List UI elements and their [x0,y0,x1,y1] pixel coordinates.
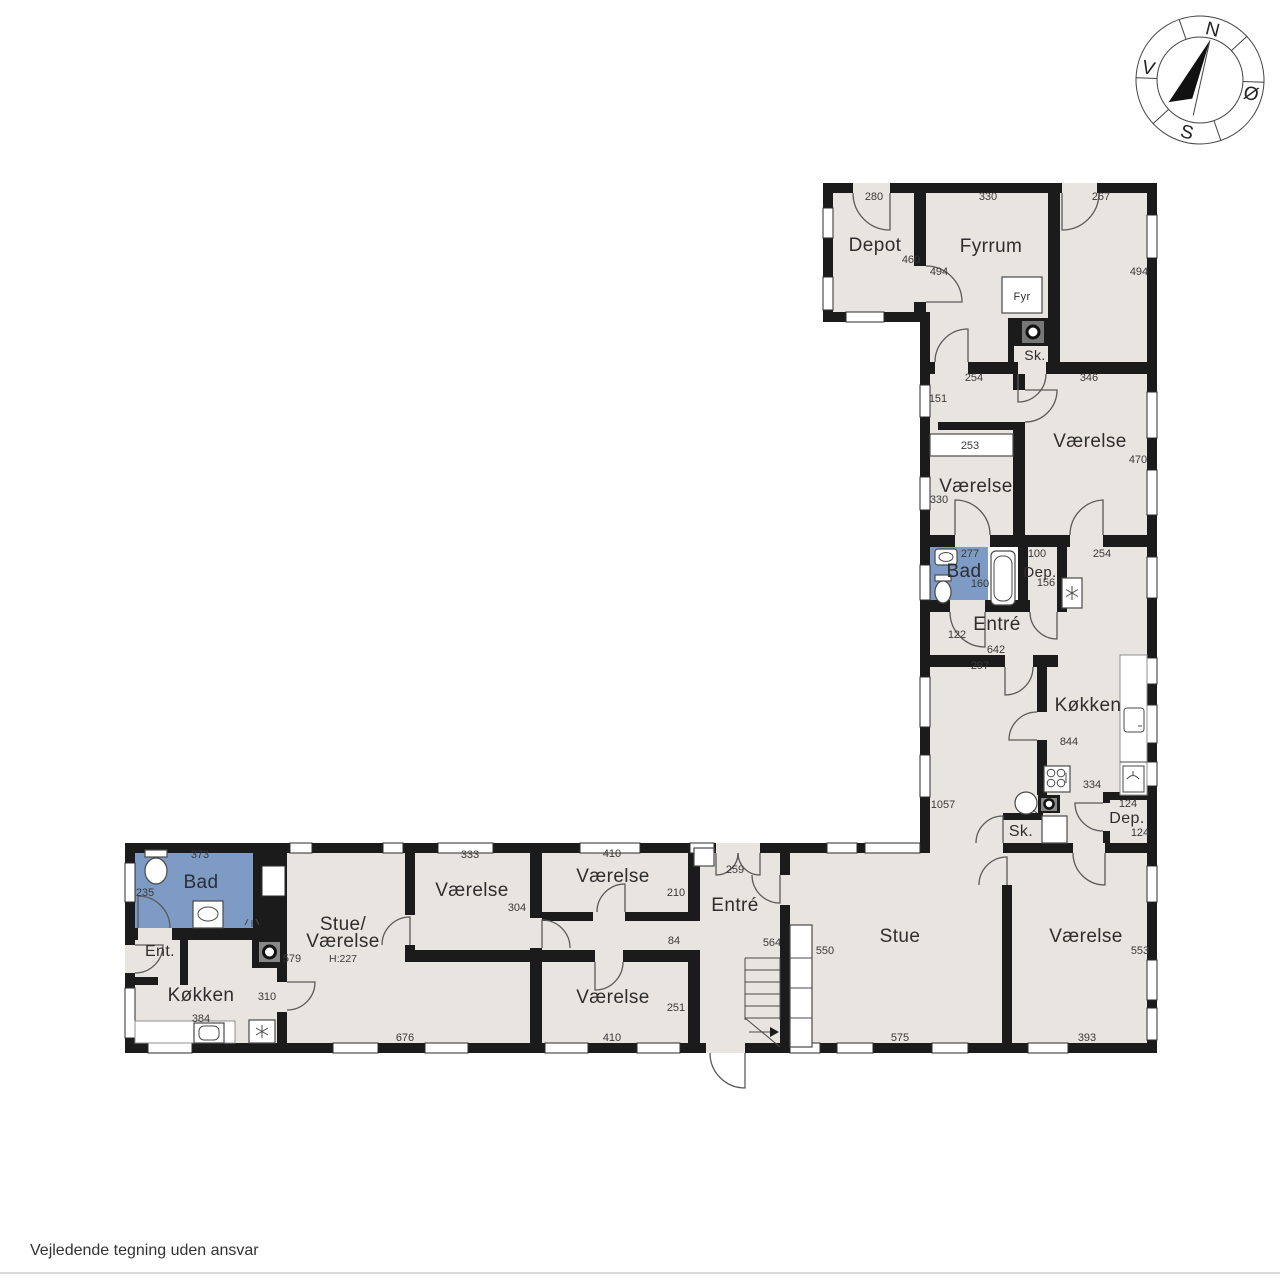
measurement-label: 579 [283,953,301,965]
measurement-label: 564 [763,937,781,949]
measurement-label: 267 [1092,191,1110,203]
compass-south: S [1178,121,1195,144]
bottom-rule [0,1272,1280,1274]
room-label: Bad [183,872,218,893]
compass-rose: N Ø S V [1122,2,1277,158]
room-label: Værelse [306,931,380,952]
measurement-label: 251 [667,1002,685,1014]
room-label: Værelse [1053,431,1127,452]
room-label: Værelse [576,866,650,887]
measurement-label: 575 [891,1032,909,1044]
measurement-label: 553 [1131,945,1149,957]
room-label: Dep. [1109,810,1144,827]
measurement-label: 304 [508,902,526,914]
measurement-label: 373 [191,849,209,861]
floor-plan-svg: N Ø S V DepotFyrrumFyrSk.VærelseVærelseB… [0,0,1280,1280]
compass-north: N [1203,18,1221,42]
measurement-label: 235 [136,887,154,899]
measurement-label: 1057 [931,799,955,811]
room-label: Sk. [1024,347,1045,363]
measurement-label: 393 [1078,1032,1096,1044]
measurement-label: 100 [1028,548,1046,560]
measurement-label: 410 [603,848,621,860]
room-label: Værelse [939,476,1013,497]
room-label: Køkken [168,985,235,1006]
measurement-label: 494 [1130,266,1148,278]
room-label: Fyrrum [960,236,1023,257]
measurement-label: 122 [948,629,966,641]
stue-closet [790,925,812,1047]
tall-cabinet [1042,816,1067,843]
room-label: Stue [880,926,921,947]
measurement-label: 277 [961,548,979,560]
measurement-label: 676 [396,1032,414,1044]
room-label: Entré [711,895,758,916]
measurement-label: 84 [668,935,680,947]
measurement-label: 844 [1060,736,1078,748]
measurement-label: 470 [1129,454,1147,466]
room-label: Sk. [1009,823,1033,840]
measurement-label: 310 [258,991,276,1003]
measurement-label: 156 [1037,577,1055,589]
measurement-label: 297 [971,660,989,672]
room-label: Værelse [435,880,509,901]
room-label: Fyr [1013,291,1030,303]
measurement-label: 460 [902,254,920,266]
sink-icon [193,901,223,928]
room-label: Værelse [576,987,650,1008]
compass-east: Ø [1241,82,1261,106]
floor-plan-page: N Ø S V DepotFyrrumFyrSk.VærelseVærelseB… [0,0,1280,1280]
measurement-label: 642 [987,644,1005,656]
measurement-label: 333 [461,849,479,861]
measurement-label: 254 [965,372,983,384]
room-label: Depot [849,235,902,256]
measurement-label: 124 [1131,827,1149,839]
measurement-label: 253 [961,440,979,452]
measurement-label: 259 [726,864,744,876]
room-label: Værelse [1049,926,1123,947]
measurement-label: 550 [816,945,834,957]
measurement-label: 210 [667,887,685,899]
measurement-label: 346 [1080,372,1098,384]
measurement-label: 410 [603,1032,621,1044]
compass-west: V [1140,57,1158,81]
room-label: Ent. [145,943,175,960]
toilet-icon [145,850,167,857]
disclaimer-text: Vejledende tegning uden ansvar [30,1242,259,1260]
measurement-label: 334 [1083,779,1101,791]
measurement-label: 160 [971,578,989,590]
measurement-label: 330 [930,494,948,506]
entry-closet [694,848,714,866]
measurement-label: 124 [1119,798,1137,810]
measurement-label: 254 [1093,548,1111,560]
measurement-label: 384 [192,1013,210,1025]
room-label: Køkken [1055,695,1122,716]
measurement-label: 151 [929,393,947,405]
measurement-label: H:227 [329,953,357,965]
room-label: Entré [973,614,1020,635]
measurement-label: 280 [865,191,883,203]
measurement-label: 330 [979,191,997,203]
measurement-label: 494 [930,266,948,278]
